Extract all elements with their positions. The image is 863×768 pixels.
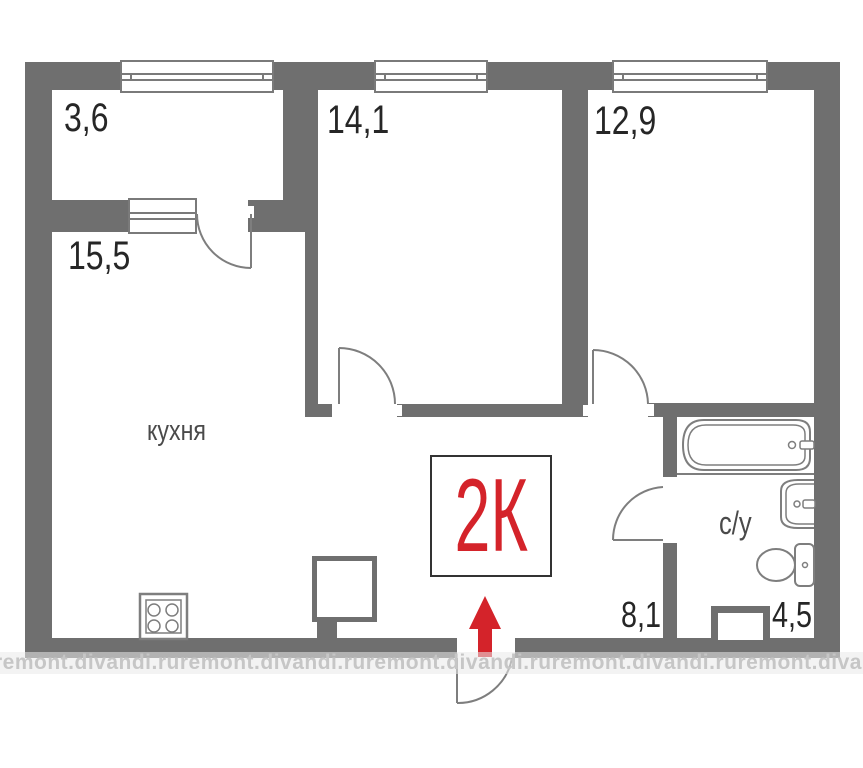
kitchen-area-label: 15,5 [68, 236, 130, 276]
watermark-strip: remont.divandi.ru remont.divandi.ru remo… [0, 652, 863, 674]
balcony-area-label: 3,6 [64, 98, 108, 138]
watermark-text: remont.divandi.ru [0, 652, 180, 674]
kitchen-name-label: кухня [147, 417, 206, 446]
plan-type-box: 2К [430, 455, 552, 577]
watermark-text: remont.divandi.ru [366, 652, 552, 674]
sink-drain-icon [794, 501, 800, 507]
toilet-bowl-icon [757, 549, 795, 581]
entrance-arrow-icon [469, 596, 501, 657]
watermark-text: remont.divandi.ru [180, 652, 366, 674]
bathtub-faucet-icon [800, 441, 814, 449]
watermark-text: remont.divandi.ru [552, 652, 738, 674]
bathroom-door-arc [613, 487, 663, 540]
room12-door-arc [593, 350, 648, 404]
room14-door-arc [339, 348, 395, 404]
bathtub-drain-icon [789, 442, 796, 449]
plan-type-label: 2К [454, 464, 527, 568]
bathroom-name-label: с/у [719, 507, 752, 539]
room12-area-label: 12,9 [594, 101, 656, 141]
room14-area-label: 14,1 [327, 100, 389, 140]
hallway-area-label: 8,1 [621, 597, 661, 633]
sink-faucet-icon [803, 500, 815, 508]
balcony-door-arc [197, 214, 251, 268]
watermark-text: remont.divandi.ru [737, 652, 863, 674]
toilet-button-icon [803, 563, 808, 568]
floor-plan: 3,6 14,1 12,9 15,5 кухня 8,1 4,5 с/у 2К … [0, 0, 863, 768]
bathroom-area-label: 4,5 [772, 597, 812, 633]
